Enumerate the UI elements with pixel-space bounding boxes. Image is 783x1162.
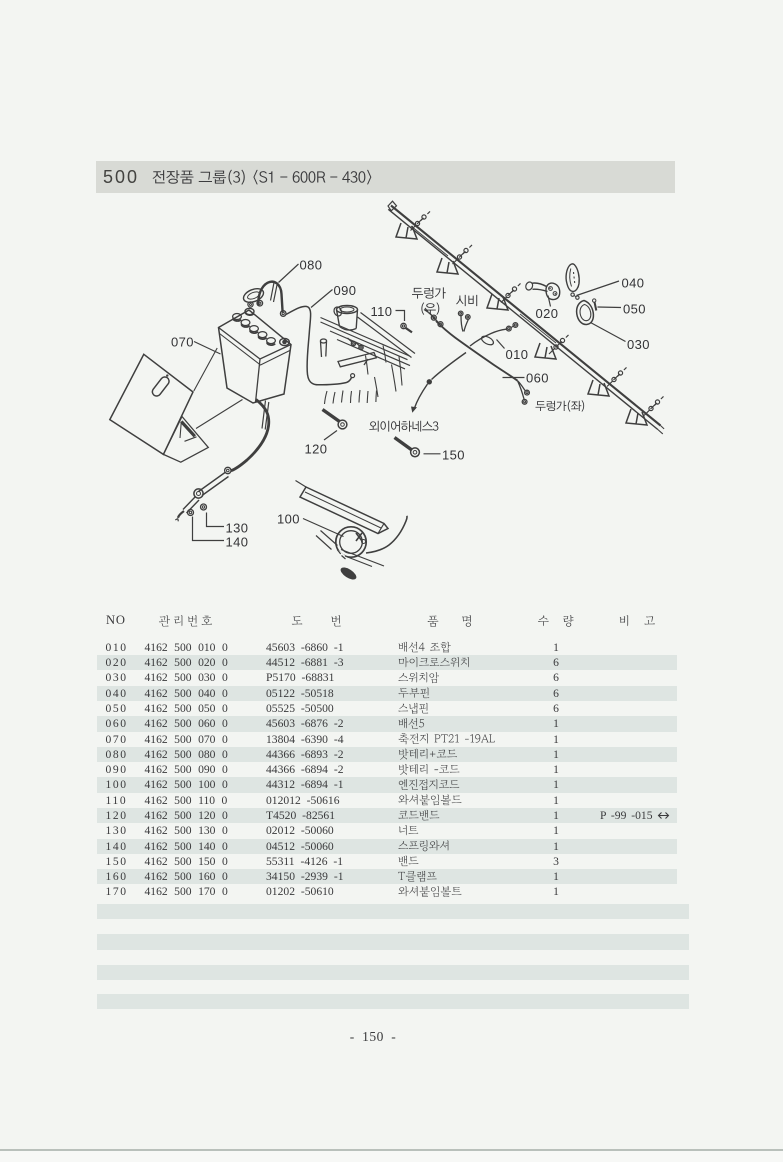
svg-text:100: 100	[277, 512, 300, 527]
svg-text:090: 090	[334, 283, 357, 298]
svg-text:060: 060	[526, 371, 549, 386]
svg-text:080: 080	[300, 258, 323, 273]
svg-text:020: 020	[536, 306, 559, 321]
svg-text:010: 010	[506, 347, 529, 362]
svg-text:070: 070	[171, 335, 194, 350]
svg-text:150: 150	[442, 448, 465, 463]
svg-text:110: 110	[371, 304, 393, 319]
svg-text:130: 130	[226, 521, 249, 536]
svg-text:050: 050	[623, 302, 646, 317]
svg-text:040: 040	[622, 276, 645, 291]
svg-text:030: 030	[627, 337, 650, 352]
svg-text:140: 140	[226, 535, 249, 550]
svg-text:120: 120	[305, 442, 328, 457]
